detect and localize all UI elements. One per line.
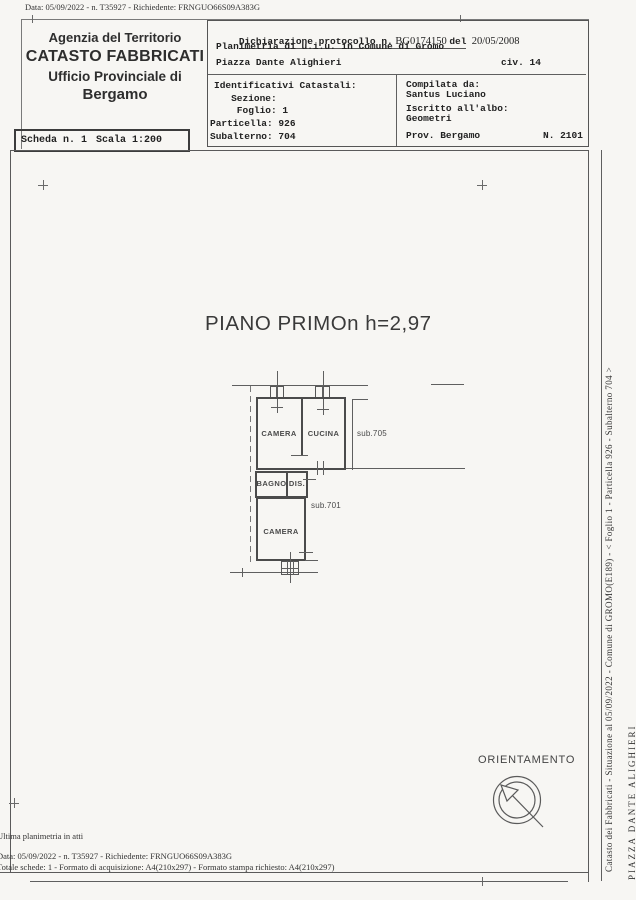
scala-value: Scala 1:200 [96, 135, 162, 146]
side-strip-line [601, 150, 602, 881]
bottom-request-line: Data: 05/09/2022 - n. T35927 - Richieden… [0, 851, 232, 861]
side-rotated-text-clipped: PIAZZA DANTE ALIGHIERI [627, 460, 636, 880]
ground-line [230, 572, 318, 573]
identifiers-sezione: Sezione: [214, 93, 277, 104]
scheda-box: Scheda n. 1 Scala 1:200 [14, 129, 190, 152]
wall-divider-camera-cucina [301, 398, 303, 455]
compiler-number: N. 2101 [543, 130, 583, 141]
scheda-number: Scheda n. 1 [21, 135, 87, 146]
room-label-cucina: CUCINA [303, 429, 344, 438]
door-tick [323, 461, 324, 475]
identifiers-particella: Particella: 926 [210, 118, 296, 129]
panel-divider [396, 74, 397, 146]
frame-edge [588, 873, 589, 882]
fold-cross [482, 180, 483, 190]
orientation-label: ORIENTAMENTO [478, 754, 568, 766]
compass-icon [491, 774, 547, 830]
compiler-name: Santus Luciano [406, 89, 486, 100]
neighbour-wall [352, 399, 368, 400]
ground-tick [242, 568, 243, 577]
room-label-camera-upper: CAMERA [257, 429, 301, 438]
side-rotated-text: Catasto dei Fabbricati - Situazione al 0… [604, 327, 614, 872]
door-tick [291, 455, 308, 456]
bottom-note-line: Ultima planimetria in atti [0, 831, 83, 841]
label-sub705: sub.705 [357, 429, 387, 438]
door-tick [317, 461, 318, 475]
bottom-rule [0, 872, 10, 873]
neighbour-wall [346, 468, 465, 469]
cadastral-floorplan-document: { "colors": { "paper": "#f7f6f3", "line"… [0, 0, 636, 900]
label-sub701: sub.701 [311, 501, 341, 510]
top-margin-request-line: Data: 05/09/2022 - n. T35927 - Richieden… [25, 2, 260, 12]
fold-cross [43, 180, 44, 190]
fold-cross [14, 798, 15, 808]
wall-extension [305, 560, 318, 561]
neighbour-wall [352, 399, 353, 470]
plan-title: PIANO PRIMOn h=2,97 [205, 312, 432, 336]
compiler-albo: Geometri [406, 113, 452, 124]
civ-number: civ. 14 [501, 57, 541, 68]
balcony-grid-line [281, 568, 299, 569]
declaration-del: del [449, 36, 466, 49]
fold-tick [32, 15, 33, 23]
agency-block: Agenzia del Territorio CATASTO FABBRICAT… [25, 30, 205, 103]
room-label-dis: DIS. [287, 479, 307, 488]
agency-line2: CATASTO FABBRICATI [25, 48, 205, 66]
bottom-format-line: Totale schede: 1 - Formato di acquisizio… [0, 862, 334, 872]
planimetria-line: Planimetria di u.i.u. in Comune di Gromo [216, 41, 444, 52]
declaration-panel: Dichiarazione protocollo n. BG0174150 de… [207, 20, 589, 147]
compiler-prov: Prov. Bergamo [406, 130, 480, 141]
identifiers-title: Identificativi Catastali: [214, 80, 357, 91]
boundary-dashed-line [250, 386, 251, 566]
agency-line3: Ufficio Provinciale di [25, 69, 205, 84]
identifiers-foglio: Foglio: 1 [214, 105, 288, 116]
door-tick [299, 552, 313, 553]
wall-top-right [431, 384, 464, 385]
protocol-date: 20/05/2008 [466, 36, 519, 47]
agency-line4: Bergamo [25, 86, 205, 103]
wall-top [232, 385, 368, 386]
bottom-fold-line [30, 881, 568, 882]
panel-separator [208, 74, 586, 75]
address-line: Piazza Dante Alighieri [216, 57, 341, 68]
agency-line1: Agenzia del Territorio [25, 30, 205, 45]
room-label-camera-lower: CAMERA [257, 527, 305, 536]
room-label-bagno: BAGNO [256, 479, 287, 488]
identifiers-subalterno: Subalterno: 704 [210, 131, 296, 142]
